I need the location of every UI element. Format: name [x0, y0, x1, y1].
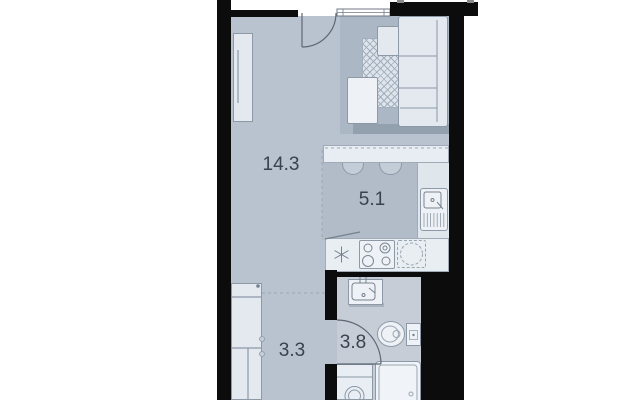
wall-stub [467, 0, 474, 3]
wall-shaft-bottom-right [421, 272, 464, 400]
cooktop [359, 240, 395, 269]
wall-top-left [231, 10, 298, 17]
built-in-appliance [397, 240, 426, 268]
wall-right [449, 16, 464, 276]
shower-tray [375, 361, 421, 400]
hallway-wardrobe [231, 283, 262, 400]
hallway-area-label: 3.3 [269, 341, 315, 360]
wall-stub [397, 0, 404, 3]
wall-bathroom-left-lower [325, 364, 337, 400]
window [337, 9, 390, 16]
washing-machine [336, 364, 373, 400]
toilet-tank [406, 323, 421, 346]
floor-plan: 14.3 5.1 3.3 3.8 [0, 0, 640, 400]
wall-bathroom-left-upper [325, 270, 337, 320]
bar-table [323, 145, 449, 163]
washbasin [348, 279, 383, 305]
kitchen-area-label: 5.1 [349, 190, 395, 209]
bathroom-area-label: 3.8 [330, 333, 376, 352]
coffee-table [347, 77, 378, 124]
living-room-area-label: 14.3 [258, 155, 304, 174]
wall-left [217, 0, 231, 400]
wall-top-right [390, 2, 478, 16]
kitchen-sink-unit [420, 188, 448, 231]
wardrobe [233, 33, 253, 122]
wall-bathroom-top [337, 272, 421, 277]
sofa [398, 16, 448, 127]
